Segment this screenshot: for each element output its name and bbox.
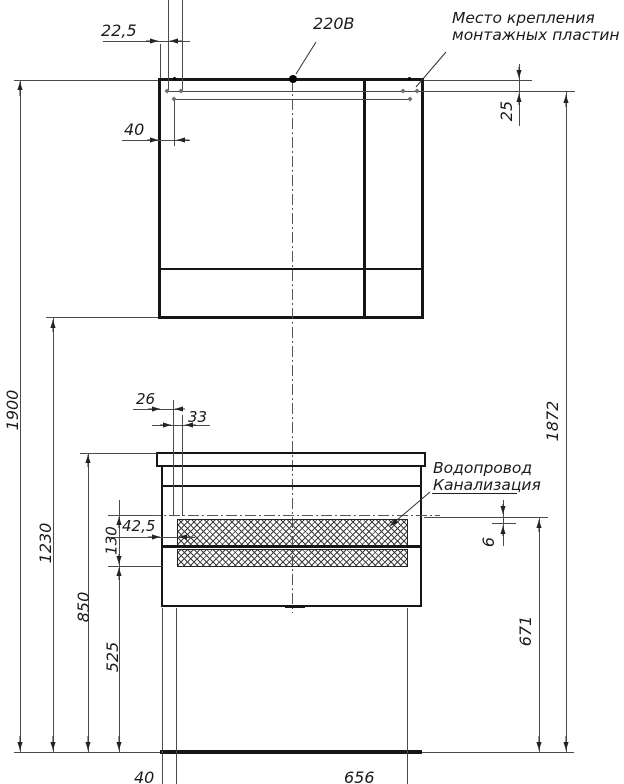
mounting-plate-points [165, 89, 420, 102]
mounting-leader-line [416, 52, 446, 87]
power-leader-line [296, 42, 316, 74]
pipes-leader-line [390, 492, 430, 526]
technical-drawing-canvas: 22,5 40 220В Место крепления монтажных п… [0, 0, 624, 784]
arrows-overlay [0, 0, 624, 784]
